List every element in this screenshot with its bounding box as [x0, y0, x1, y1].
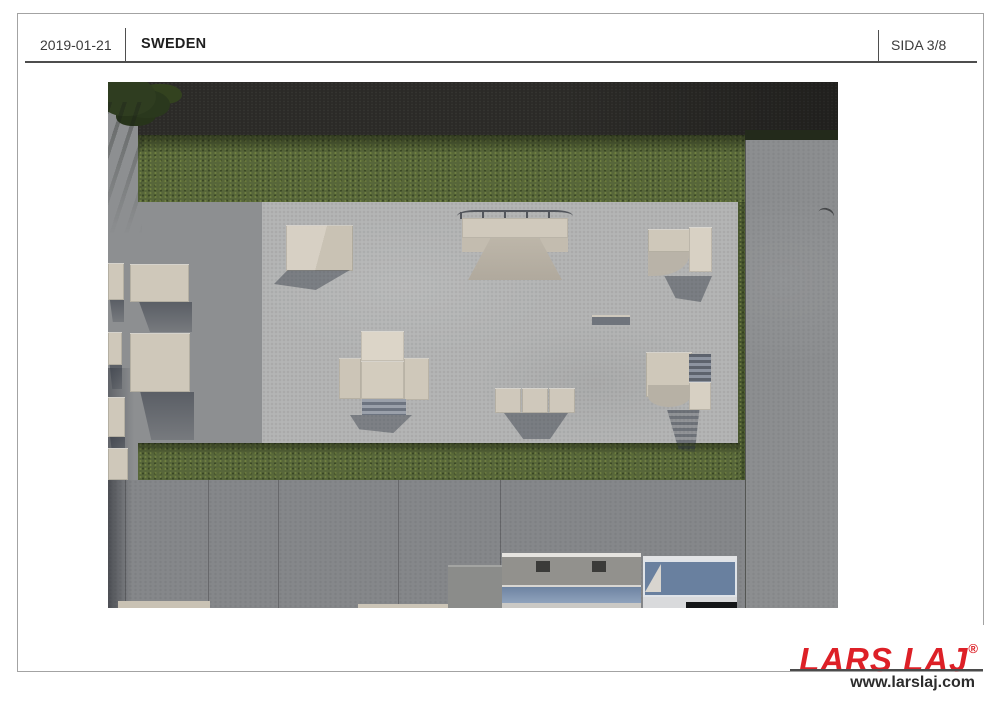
- roof-surface: [502, 557, 641, 585]
- building-shadow: [133, 392, 194, 440]
- page-number: SIDA 3/8: [891, 37, 946, 53]
- logo-underline: [790, 669, 983, 671]
- grind-box: [286, 225, 353, 271]
- building-roof-gray: [448, 565, 502, 608]
- building-hall-roof: [502, 553, 641, 608]
- building-roof: [108, 448, 128, 480]
- building-roof: [108, 397, 125, 437]
- asphalt-road: [138, 82, 838, 135]
- roof-vent: [592, 561, 606, 572]
- header-divider-left: [125, 28, 126, 62]
- roof-vent: [536, 561, 550, 572]
- page-border-top: [17, 13, 983, 14]
- roof-opening: [686, 602, 737, 608]
- brand-logo-text: LARS LAJ: [799, 641, 968, 678]
- bank-side-panel: [689, 382, 711, 410]
- page-title: SWEDEN: [141, 36, 206, 52]
- roof-blue-section: [502, 587, 641, 603]
- bank-transition: [648, 385, 690, 407]
- bench-block: [522, 388, 548, 413]
- catalog-page: 2019-01-21 SWEDEN SIDA 3/8: [0, 0, 1000, 707]
- pavement-seam: [208, 480, 209, 608]
- pavement-seam: [278, 480, 279, 608]
- tree-shadow: [108, 102, 142, 252]
- registered-trademark-icon: ®: [968, 641, 978, 656]
- pavement-seam: [398, 480, 399, 608]
- building-shadow: [132, 302, 192, 332]
- page-border-left: [17, 13, 18, 672]
- funbox-wing-left: [339, 358, 361, 399]
- roof-base: [502, 603, 641, 608]
- platform-deck: [462, 218, 568, 238]
- building-roof-strip: [358, 604, 448, 608]
- building-roof: [130, 264, 189, 302]
- building-shadow: [108, 480, 132, 608]
- website-url: www.larslaj.com: [850, 674, 975, 692]
- building-blue-roof: [643, 556, 737, 608]
- building-roof: [108, 332, 122, 365]
- bank-stairs: [689, 354, 711, 382]
- funbox-wing-right: [404, 358, 429, 400]
- grass-strip-bottom: [138, 443, 740, 480]
- bench-block: [549, 388, 575, 413]
- grind-ledge: [592, 315, 630, 325]
- site-plan-render: [108, 82, 838, 608]
- header-divider-right: [878, 30, 879, 62]
- building-shadow: [108, 300, 124, 322]
- building-roof: [130, 333, 190, 392]
- funbox-wing-top: [361, 331, 404, 361]
- page-border-right: [983, 13, 984, 625]
- funbox-stairs: [362, 399, 406, 415]
- funbox-table: [361, 361, 404, 399]
- building-roof-strip: [118, 601, 210, 608]
- header-date: 2019-01-21: [40, 37, 112, 53]
- bench-block: [495, 388, 521, 413]
- grass-strip-top: [138, 135, 745, 202]
- header-underline: [25, 61, 977, 63]
- bench-ledges: [495, 388, 575, 413]
- grass-strip-side: [738, 202, 745, 480]
- quarter-pipe-side: [689, 227, 712, 272]
- building-roof: [108, 263, 124, 300]
